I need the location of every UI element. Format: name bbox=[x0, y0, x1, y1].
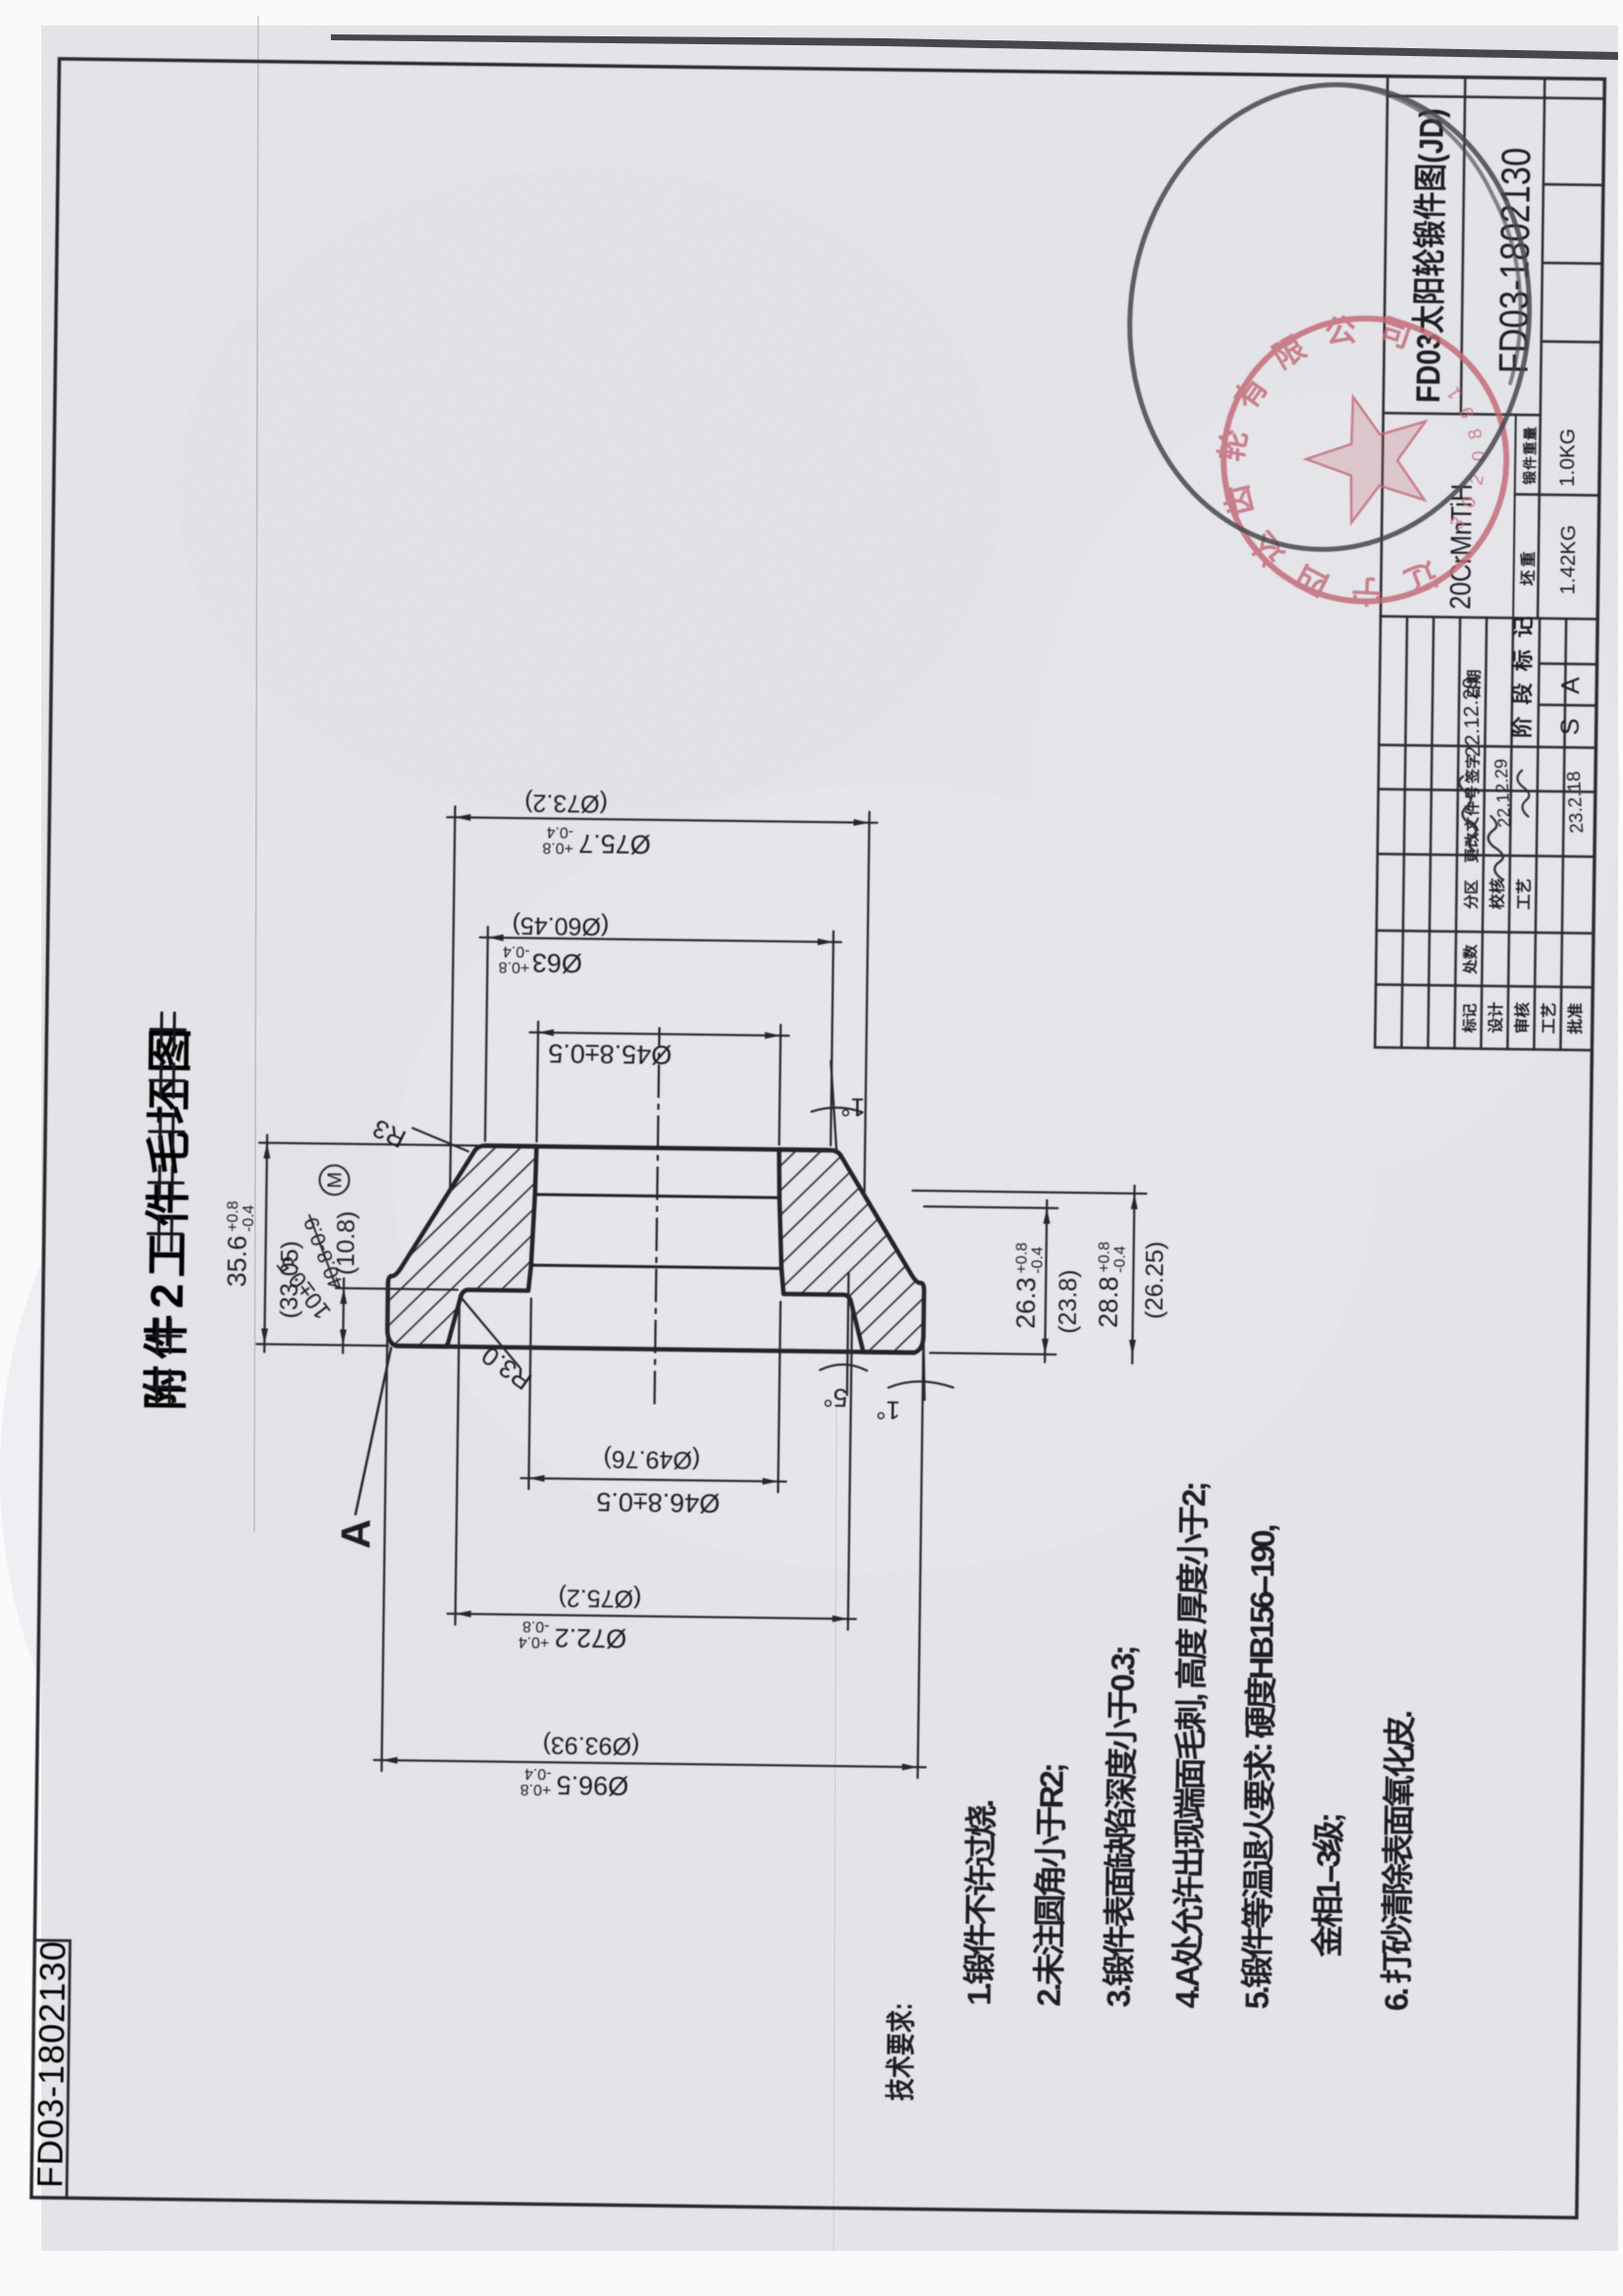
svg-text:Ø72.2: Ø72.2 bbox=[554, 1623, 626, 1654]
svg-text:22.12.29: 22.12.29 bbox=[1459, 677, 1485, 758]
svg-text:(Ø60.45): (Ø60.45) bbox=[512, 911, 609, 940]
svg-text:1.0KG: 1.0KG bbox=[1556, 428, 1580, 487]
svg-text:工艺: 工艺 bbox=[1540, 1003, 1558, 1034]
svg-text:26.3: 26.3 bbox=[1011, 1277, 1042, 1329]
svg-text:35.6: 35.6 bbox=[222, 1235, 252, 1287]
svg-text:Ø75.7: Ø75.7 bbox=[578, 829, 651, 859]
svg-text:6. 打砂清除表面氧化皮.: 6. 打砂清除表面氧化皮. bbox=[1379, 1712, 1419, 2011]
svg-text:锻件重量: 锻件重量 bbox=[1522, 425, 1539, 484]
svg-text:(26.25): (26.25) bbox=[1141, 1241, 1169, 1320]
svg-text:Ø46.8±0.5: Ø46.8±0.5 bbox=[596, 1487, 720, 1518]
svg-text:A: A bbox=[333, 1518, 379, 1549]
svg-text:标记: 标记 bbox=[1461, 1004, 1479, 1034]
svg-text:1.锻件不许过烧.: 1.锻件不许过烧. bbox=[961, 1801, 1001, 2006]
svg-text:3.锻件表面缺陷深度小于0.3;: 3.锻件表面缺陷深度小于0.3; bbox=[1101, 1648, 1142, 2008]
svg-text:设计: 设计 bbox=[1487, 1002, 1505, 1033]
svg-text:-0.4: -0.4 bbox=[524, 1765, 552, 1781]
svg-text:-0.4: -0.4 bbox=[1111, 1245, 1128, 1273]
svg-text:+0.8: +0.8 bbox=[542, 839, 573, 855]
svg-text:(Ø49.76): (Ø49.76) bbox=[603, 1445, 700, 1473]
svg-text:5.锻件等温退火要求: 硬度HB156--190,: 5.锻件等温退火要求: 硬度HB156--190, bbox=[1239, 1525, 1281, 2009]
svg-text:批准: 批准 bbox=[1566, 1003, 1585, 1034]
svg-text:1°: 1° bbox=[876, 1395, 900, 1425]
svg-text:(Ø93.93): (Ø93.93) bbox=[543, 1730, 640, 1759]
svg-text:阶段标记: 阶段标记 bbox=[1510, 604, 1537, 738]
svg-text:+0.8: +0.8 bbox=[1013, 1242, 1030, 1274]
svg-text:Ø96.5: Ø96.5 bbox=[557, 1771, 629, 1801]
svg-text:FD03太阳轮锻件图(JD): FD03太阳轮锻件图(JD) bbox=[1410, 108, 1451, 403]
svg-text:+0.4: +0.4 bbox=[518, 1633, 550, 1650]
svg-text:5°: 5° bbox=[823, 1383, 847, 1412]
svg-text:审核: 审核 bbox=[1513, 1002, 1532, 1033]
svg-text:+0.8: +0.8 bbox=[225, 1201, 242, 1232]
svg-text:技术要求:: 技术要求: bbox=[885, 2002, 918, 2101]
svg-text:分区: 分区 bbox=[1463, 880, 1480, 909]
svg-text:+0.8: +0.8 bbox=[520, 1780, 552, 1797]
svg-text:(Ø73.2): (Ø73.2) bbox=[524, 789, 608, 817]
svg-text:-0.4: -0.4 bbox=[1029, 1246, 1046, 1274]
svg-text:坯重: 坯重 bbox=[1519, 548, 1538, 585]
svg-text:23.2.18: 23.2.18 bbox=[1564, 771, 1589, 834]
svg-text:Ø63: Ø63 bbox=[532, 948, 582, 978]
svg-text:1.42KG: 1.42KG bbox=[1556, 524, 1580, 595]
svg-text:S: S bbox=[1555, 718, 1585, 736]
svg-text:-0.4: -0.4 bbox=[546, 823, 573, 840]
svg-text:A: A bbox=[1555, 677, 1585, 694]
svg-text:4.A处允许出现端面毛刺, 高度 厚度小于2;: 4.A处允许出现端面毛刺, 高度 厚度小于2; bbox=[1169, 1484, 1213, 2009]
svg-text:校核: 校核 bbox=[1488, 878, 1506, 909]
svg-text:28.8: 28.8 bbox=[1094, 1277, 1124, 1329]
svg-text:2.未注圆角小于R2;: 2.未注圆角小于R2; bbox=[1031, 1765, 1070, 2006]
svg-text:工艺: 工艺 bbox=[1514, 878, 1533, 909]
svg-text:-0.4: -0.4 bbox=[241, 1205, 257, 1232]
svg-text:+0.8: +0.8 bbox=[1096, 1241, 1112, 1273]
svg-text:(23.8): (23.8) bbox=[1055, 1270, 1083, 1335]
svg-text:(Ø75.2): (Ø75.2) bbox=[558, 1584, 641, 1613]
svg-text:-0.4: -0.4 bbox=[503, 943, 530, 959]
svg-text:Ø45.8±0.5: Ø45.8±0.5 bbox=[548, 1038, 672, 1069]
svg-text:处数: 处数 bbox=[1461, 944, 1479, 975]
svg-text:+0.8: +0.8 bbox=[499, 958, 530, 975]
svg-text:1°: 1° bbox=[840, 1092, 865, 1121]
svg-text:-0.8: -0.8 bbox=[522, 1617, 550, 1634]
svg-text:金相1--3级;: 金相1--3级; bbox=[1309, 1815, 1347, 1958]
svg-text:FD03-1802130: FD03-1802130 bbox=[29, 1941, 73, 2189]
svg-text:22.12.29: 22.12.29 bbox=[1490, 758, 1514, 828]
svg-text:M: M bbox=[324, 1172, 346, 1188]
